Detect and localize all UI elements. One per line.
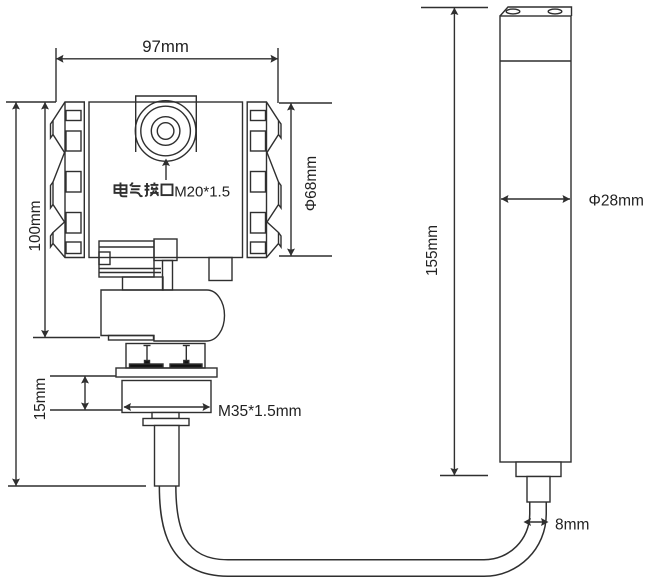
svg-text:155mm: 155mm bbox=[424, 225, 441, 276]
svg-text:8mm: 8mm bbox=[555, 517, 589, 534]
svg-text:97mm: 97mm bbox=[142, 37, 189, 56]
svg-text:100mm: 100mm bbox=[27, 200, 44, 251]
svg-text:M20*1.5: M20*1.5 bbox=[174, 184, 230, 201]
svg-text:Φ68mm: Φ68mm bbox=[303, 156, 320, 211]
svg-text:Φ28mm: Φ28mm bbox=[589, 193, 644, 210]
svg-text:M35*1.5mm: M35*1.5mm bbox=[218, 403, 302, 420]
svg-text:15mm: 15mm bbox=[32, 378, 49, 421]
